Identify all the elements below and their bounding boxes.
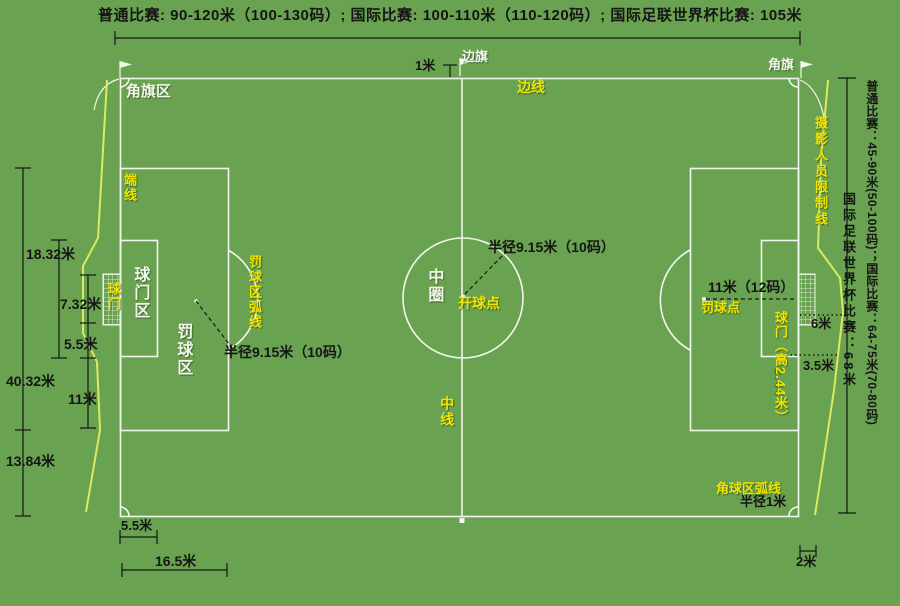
- label-11m: 11米（12码）: [708, 279, 794, 295]
- dim-18-32m: 18.32米: [26, 246, 75, 262]
- side-width-note-1: 普通比赛：45-90米(50-100码)；国际比赛：64-75米(70-80码): [864, 80, 878, 425]
- label-kickoff-point: 开球点: [458, 295, 500, 311]
- dim-16-5m: 16.5米: [155, 553, 196, 569]
- corner-arc-top-right: [789, 78, 798, 87]
- label-corner-flag-area: 角旗区: [126, 83, 171, 100]
- dim-line-top-length: [115, 31, 800, 45]
- label-halfway-line: 中线: [439, 396, 455, 428]
- dim-11m: 11米: [68, 391, 97, 407]
- halfway-bottom-marker: [460, 518, 465, 523]
- dim-5-5m-bottom: 5.5米: [121, 519, 152, 534]
- label-center-circle: 中圈: [424, 268, 442, 304]
- corner-flag-top-left-icon: [120, 61, 132, 78]
- label-2m: 2米: [796, 555, 816, 570]
- dim-marker-1m: [443, 65, 457, 77]
- dim-40-32m: 40.32米: [6, 373, 55, 389]
- label-touchline: 边线: [517, 79, 545, 95]
- right-penalty-arc: [660, 250, 690, 350]
- label-radius-915-left: 半径9.15米（10码）: [224, 344, 351, 360]
- label-1m: 1米: [415, 59, 435, 74]
- label-3-5m: 3.5米: [803, 359, 834, 374]
- label-goal-area: 球门区: [130, 266, 148, 320]
- label-penalty-spot: 罚球点: [701, 301, 740, 316]
- label-goal-left: 球门: [105, 282, 120, 312]
- dim-7-32m: 7.32米: [60, 296, 101, 312]
- label-corner-flag: 角旗: [768, 58, 794, 73]
- dim-13-84m: 13.84米: [6, 453, 55, 469]
- label-penalty-area: 罚球区: [173, 323, 191, 377]
- label-end-line: 端线: [121, 173, 136, 203]
- leader-center-radius: [465, 251, 507, 294]
- label-goal-height: 球门（高2.44米）: [772, 311, 787, 424]
- corner-arc-bottom-left: [120, 507, 129, 516]
- label-6m: 6米: [811, 317, 831, 332]
- leader-left-radius: [196, 301, 233, 349]
- dim-5-5m: 5.5米: [64, 336, 97, 352]
- football-field-diagram: 普通比赛: 90-120米（100-130码）; 国际比赛: 100-110米（…: [0, 0, 900, 606]
- corner-arc-bottom-right: [789, 507, 798, 516]
- diagram-title: 普通比赛: 90-120米（100-130码）; 国际比赛: 100-110米（…: [0, 7, 900, 24]
- label-penalty-arc: 罚球区弧线: [246, 255, 261, 330]
- corner-flag-top-right-icon: [801, 61, 813, 78]
- label-photographer-line: 摄影人员限制线: [812, 116, 827, 228]
- label-radius-915-center: 半径9.15米（10码）: [488, 239, 615, 255]
- label-radius-1m: 半径1米: [740, 495, 786, 510]
- label-side-flag: 边旗: [462, 50, 488, 65]
- side-width-note-2: 国际足联世界杯比赛：68米: [840, 192, 855, 388]
